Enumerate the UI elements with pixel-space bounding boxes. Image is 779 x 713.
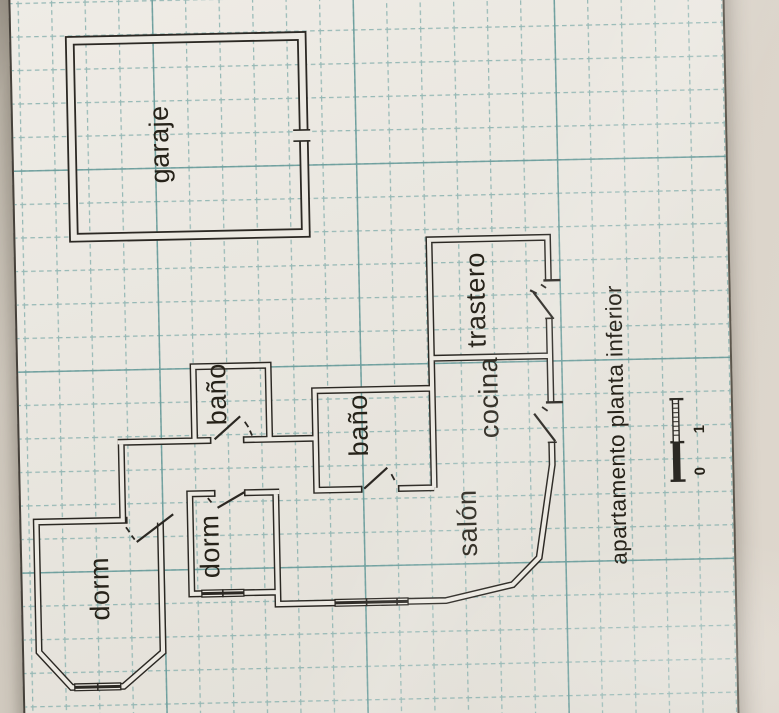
garage-door-opening — [293, 130, 311, 141]
room-label-garaje: garaje — [144, 105, 176, 184]
window-bay-dorm-1 — [75, 682, 121, 691]
photo-frame: 1 0 garaje dorm dorm baño baño salón coc… — [0, 0, 779, 713]
window-dorm-2 — [202, 589, 244, 598]
scale-label-1: 1 — [691, 425, 708, 434]
room-label-cocina: cocina — [473, 356, 505, 438]
floor-plan: 1 0 garaje dorm dorm baño baño salón coc… — [8, 0, 740, 713]
scale-label-0: 0 — [692, 467, 709, 476]
room-label-trastero: trastero — [460, 252, 492, 348]
graph-paper: 1 0 garaje dorm dorm baño baño salón coc… — [8, 0, 740, 713]
window-salon — [335, 597, 408, 607]
room-label-dorm-1: dorm — [84, 557, 115, 621]
room-label-salon: salón — [452, 489, 483, 557]
room-label-bano-1: baño — [201, 363, 232, 426]
room-label-bano-2: baño — [343, 394, 374, 457]
room-label-dorm-2: dorm — [194, 514, 225, 578]
